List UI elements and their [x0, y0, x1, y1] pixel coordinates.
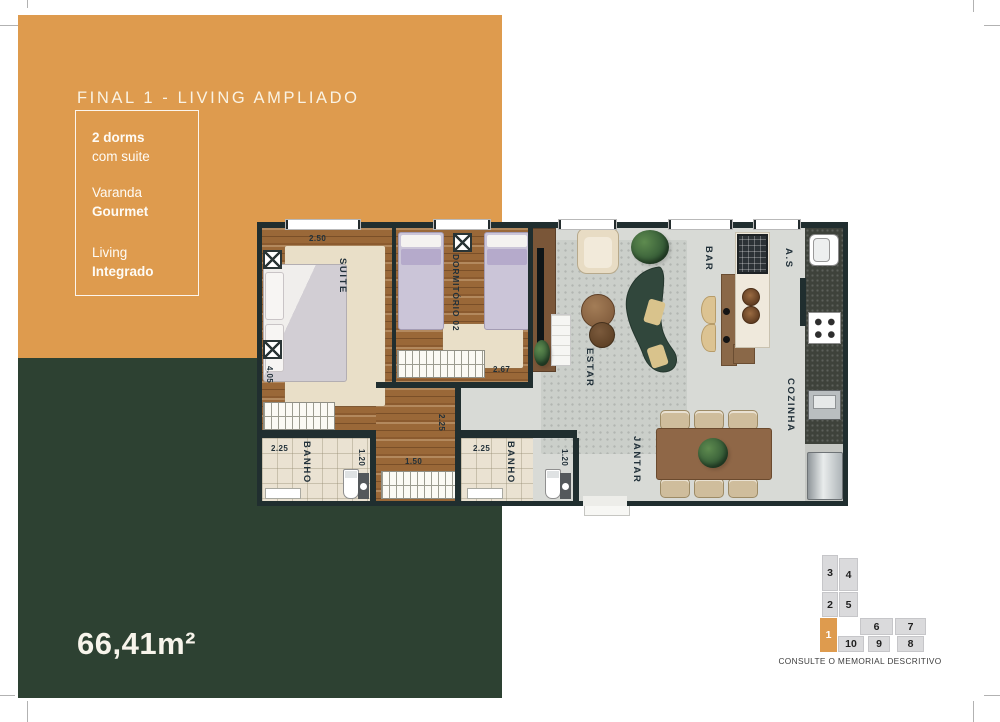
feature-line: com suite — [92, 147, 150, 166]
ceiling-speaker-icon — [263, 340, 282, 359]
feature-box: 2 dorms com suite Varanda Gourmet Living… — [75, 110, 199, 296]
crop-mark — [973, 701, 974, 722]
cooktop — [808, 312, 841, 344]
label-dorm02: DORMITÓRIO 02 — [451, 254, 461, 331]
dim-suite-side: 4.05 — [265, 366, 274, 383]
keyplan-unit-2: 2 — [822, 592, 838, 617]
feature-line: Gourmet — [92, 202, 148, 221]
keyplan-note: CONSULTE O MEMORIAL DESCRITIVO — [772, 656, 948, 666]
dining-chair — [694, 410, 724, 430]
bathroom-window — [265, 488, 301, 499]
feature-dorms: 2 dorms com suite — [92, 128, 150, 166]
keyplan-unit-5: 5 — [839, 592, 858, 617]
single-bed-1 — [398, 232, 444, 330]
wall-segment — [262, 430, 374, 438]
window — [558, 219, 617, 230]
coffee-machine — [737, 234, 768, 274]
single-bed-2 — [484, 232, 530, 330]
armchair — [577, 228, 619, 274]
window — [668, 219, 733, 230]
keyplan-unit-3: 3 — [822, 555, 838, 591]
keyplan: 3 4 2 5 1 6 7 10 9 8 — [818, 552, 930, 654]
keyplan-unit-10: 10 — [838, 636, 864, 652]
service-sink — [809, 234, 839, 266]
window — [753, 219, 801, 230]
keyplan-unit-6: 6 — [860, 618, 893, 635]
bar-stool — [701, 296, 716, 324]
wall-segment — [370, 430, 376, 501]
shelf-rack — [551, 314, 571, 366]
stool-anchor — [723, 336, 730, 343]
label-banho1: BANHO — [301, 441, 312, 484]
bathroom-window — [467, 488, 503, 499]
brochure-page: FINAL 1 - LIVING AMPLIADO 2 dorms com su… — [0, 0, 1000, 722]
refrigerator — [807, 452, 843, 500]
feature-line: 2 dorms — [92, 128, 150, 147]
plant — [534, 340, 550, 366]
feature-varanda: Varanda Gourmet — [92, 183, 148, 221]
dim-banho2-side: 1.20 — [560, 449, 569, 466]
coffee-table — [589, 322, 615, 348]
wall-segment — [573, 438, 579, 501]
entry-door-gap — [583, 496, 627, 506]
tv — [537, 248, 544, 348]
crop-mark — [984, 695, 1000, 696]
bar-bowl — [742, 306, 760, 324]
dining-chair — [694, 478, 724, 498]
bed-pillow — [401, 249, 441, 265]
dorm-wardrobe — [397, 350, 485, 378]
toilet — [545, 469, 561, 499]
wall-segment — [455, 387, 461, 501]
keyplan-unit-4: 4 — [839, 558, 858, 591]
vestibule-floor — [461, 388, 533, 430]
bathroom-sink — [358, 473, 369, 499]
label-estar: ESTAR — [584, 348, 595, 388]
keyplan-unit-9: 9 — [868, 636, 890, 652]
crop-mark — [0, 25, 18, 26]
dim-banho1-side: 1.20 — [357, 449, 366, 466]
plan-title: FINAL 1 - LIVING AMPLIADO — [77, 89, 360, 108]
label-servico: A.S — [783, 248, 794, 269]
bed-pillow — [487, 249, 527, 265]
label-banho2: BANHO — [505, 441, 516, 484]
ceiling-speaker-icon — [263, 250, 282, 269]
dim-banho1: 2.25 — [271, 444, 288, 453]
bar-stool — [701, 324, 716, 352]
area-value: 66,41m² — [77, 626, 196, 662]
dining-chair — [728, 478, 758, 498]
feature-line: Varanda — [92, 183, 148, 202]
curved-sofa — [619, 264, 683, 376]
kitchen-sink — [808, 390, 841, 420]
wall-segment — [800, 278, 806, 326]
label-bar: BAR — [703, 246, 714, 271]
stool-anchor — [723, 308, 730, 315]
crop-mark — [27, 701, 28, 722]
dim-dorm: 2.67 — [493, 365, 510, 374]
wall-segment — [392, 227, 396, 388]
dim-banho2: 2.25 — [473, 444, 490, 453]
window — [285, 219, 361, 230]
wall-segment — [455, 430, 577, 438]
bathroom-sink — [560, 473, 571, 499]
suite-wardrobe — [263, 402, 335, 430]
label-suite: SUITE — [337, 258, 348, 294]
dim-hall-corridor: 2.25 — [437, 414, 446, 431]
crop-mark — [984, 25, 1000, 26]
keyplan-unit-1-highlighted: 1 — [820, 618, 837, 652]
dining-chair — [660, 478, 690, 498]
keyplan-unit-7: 7 — [895, 618, 926, 635]
dining-chair — [660, 410, 690, 430]
crop-mark — [0, 695, 15, 696]
toilet — [343, 469, 359, 499]
bed-sheet — [401, 235, 441, 247]
dim-suite-top: 2.50 — [309, 234, 326, 243]
keyplan-unit-8: 8 — [897, 636, 924, 652]
floorplan: SUITE 2.50 4.05 DORMITÓRIO 02 2.67 1.50 … — [257, 222, 848, 506]
window — [433, 219, 491, 230]
label-jantar: JANTAR — [631, 436, 642, 483]
feature-line: Integrado — [92, 262, 154, 281]
hall-closet — [381, 471, 457, 499]
ceiling-speaker-icon — [453, 233, 472, 252]
label-cozinha: COZINHA — [785, 378, 796, 432]
crop-mark — [973, 0, 974, 12]
crop-mark — [27, 0, 28, 8]
plant — [631, 230, 669, 264]
bed-pillow — [265, 272, 284, 320]
bed-sheet — [487, 235, 527, 247]
table-plant — [698, 438, 728, 468]
wall-segment — [528, 227, 533, 388]
bar-bowl — [742, 288, 760, 306]
dim-hall-closet: 1.50 — [405, 457, 422, 466]
dining-chair — [728, 410, 758, 430]
feature-living: Living Integrado — [92, 243, 154, 281]
feature-line: Living — [92, 243, 154, 262]
